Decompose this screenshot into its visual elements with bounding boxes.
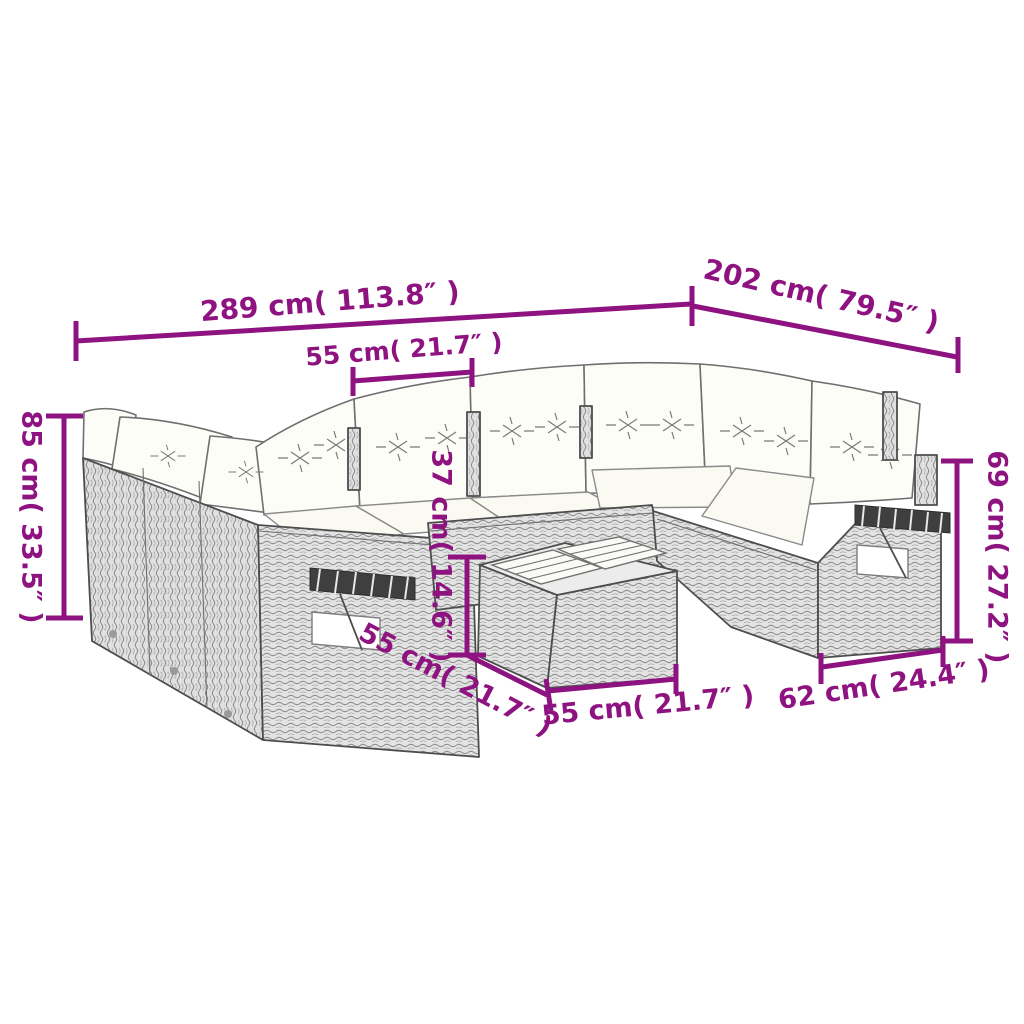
dim-back-height: 69 cm( 27.2″ ) xyxy=(941,450,1013,663)
dimension-diagram: 289 cm( 113.8″ ) 202 cm( 79.5″ ) 55 cm( … xyxy=(0,0,1024,1024)
right-shelf-panel xyxy=(857,545,908,578)
dim-overall-depth: 202 cm( 79.5″ ) xyxy=(693,252,958,373)
dimension-label: 202 cm( 79.5″ ) xyxy=(700,252,942,338)
dimension-line xyxy=(46,416,83,618)
right-arm-post xyxy=(915,455,937,505)
sofa-dimension-drawing: 289 cm( 113.8″ ) 202 cm( 79.5″ ) 55 cm( … xyxy=(0,0,1024,1024)
frame-post xyxy=(883,392,897,460)
dim-overall-height: 85 cm( 33.5″ ) xyxy=(16,410,84,623)
frame-post xyxy=(348,428,360,490)
back-cushion xyxy=(256,399,360,515)
frame-post xyxy=(467,412,480,496)
dimension-label: 85 cm( 33.5″ ) xyxy=(16,410,47,623)
dimension-line xyxy=(941,461,973,641)
dimension-label: 37 cm( 14.6″ ) xyxy=(426,449,457,662)
dimension-label: 62 cm( 24.4″ ) xyxy=(776,654,992,716)
dim-seat-width: 55 cm( 21.7″ ) xyxy=(304,327,503,396)
dimension-label: 69 cm( 27.2″ ) xyxy=(982,450,1013,663)
frame-post xyxy=(580,406,592,458)
back-cushion xyxy=(810,381,920,504)
